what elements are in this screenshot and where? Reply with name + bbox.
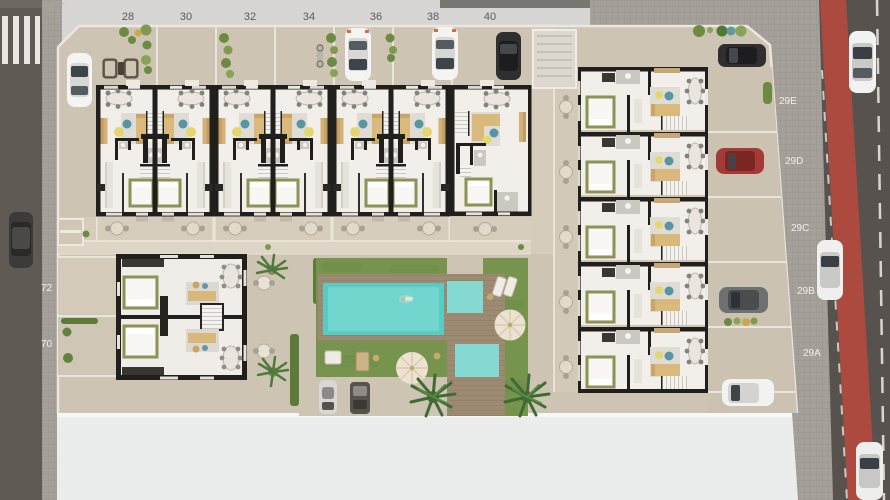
svg-text:34: 34: [303, 11, 315, 23]
svg-text:70: 70: [41, 339, 53, 350]
svg-text:38: 38: [427, 11, 439, 23]
svg-text:36: 36: [370, 11, 382, 23]
svg-text:29B: 29B: [797, 286, 815, 297]
svg-text:32: 32: [244, 11, 256, 23]
svg-text:29D: 29D: [785, 156, 803, 167]
svg-text:40: 40: [484, 11, 496, 23]
svg-text:72: 72: [41, 283, 53, 294]
svg-text:29A: 29A: [803, 348, 821, 359]
svg-text:29E: 29E: [779, 96, 797, 107]
svg-text:29C: 29C: [791, 223, 809, 234]
svg-text:30: 30: [180, 11, 192, 23]
svg-text:28: 28: [122, 11, 134, 23]
